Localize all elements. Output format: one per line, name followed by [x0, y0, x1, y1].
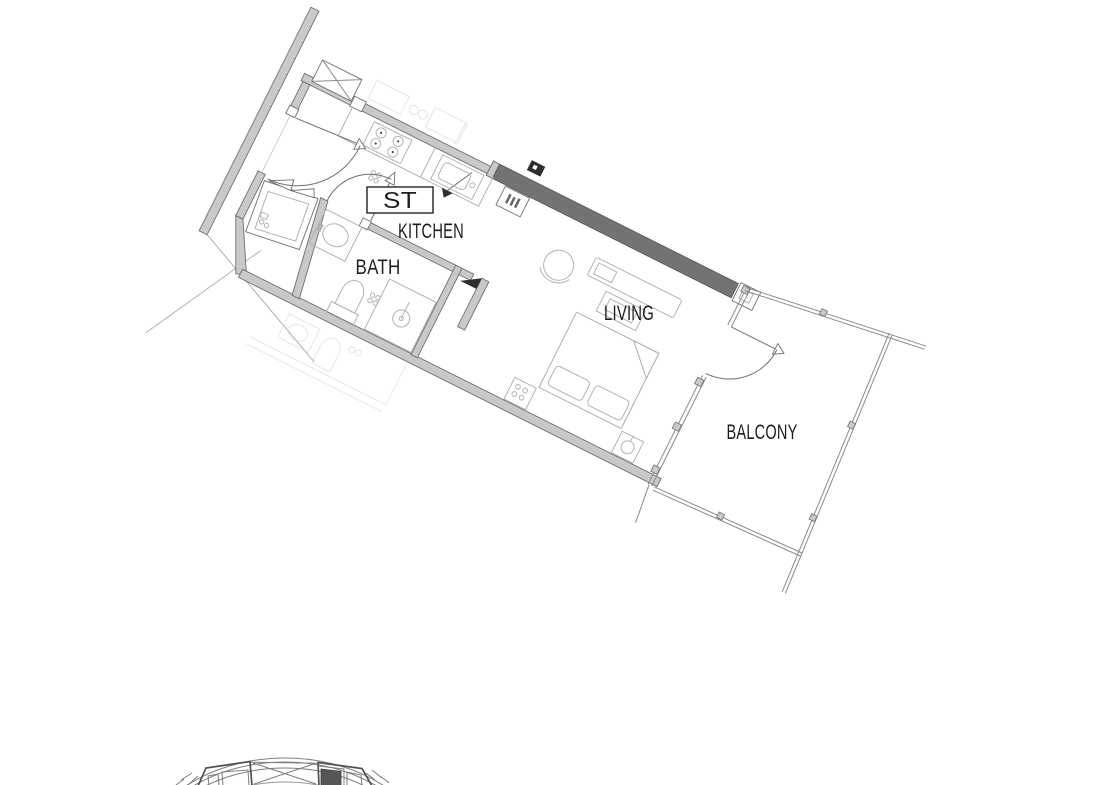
- unit-walls: [188, 7, 779, 486]
- balcony-door: [706, 321, 787, 401]
- neighbor-unit-below: [146, 221, 423, 443]
- floor-plan-drawing: ST KITCHEN BATH LIVING BALCONY: [0, 0, 1120, 785]
- chair-icon: [536, 245, 579, 289]
- bed-icon: [539, 312, 659, 428]
- room-label-bath: BATH: [356, 256, 401, 279]
- doors: [260, 103, 786, 421]
- counter-break-marker: [438, 188, 452, 201]
- room-label-living: LIVING: [604, 302, 654, 325]
- floor-drain-icon: [368, 170, 382, 184]
- bath-right-wall: [411, 265, 462, 358]
- washer-glyph: [367, 292, 381, 306]
- room-label-kitchen: KITCHEN: [398, 220, 464, 243]
- keyplan-bay-left: [198, 762, 252, 785]
- unit-plan: [146, 6, 939, 647]
- building-key-plan: [135, 758, 435, 785]
- keyplan-dark-cell: [321, 769, 341, 785]
- room-label-st: ST: [383, 187, 417, 213]
- room-label-balcony: BALCONY: [727, 421, 798, 444]
- screenshot-root: ST KITCHEN BATH LIVING BALCONY: [0, 0, 1120, 785]
